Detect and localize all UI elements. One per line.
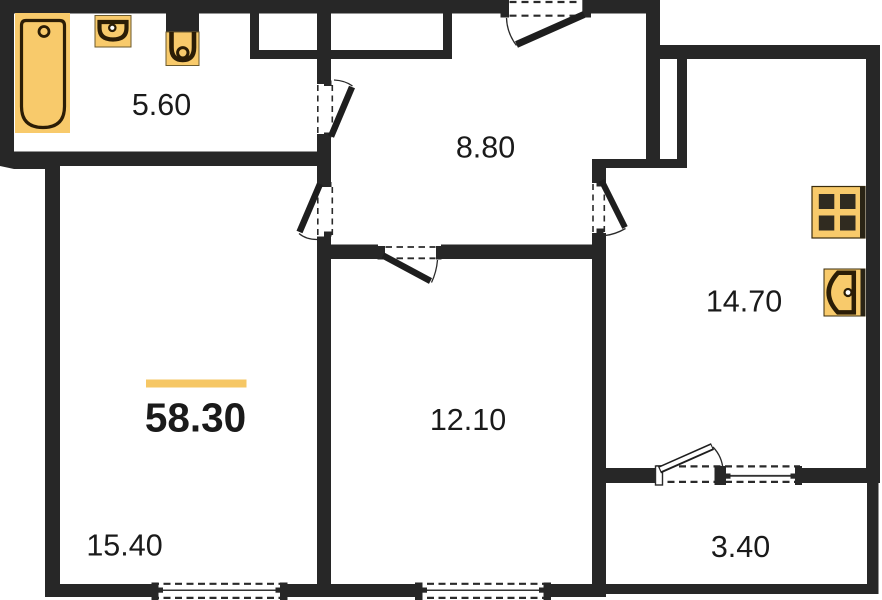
svg-text:58.30: 58.30 bbox=[145, 395, 246, 441]
svg-text:14.70: 14.70 bbox=[706, 285, 782, 319]
svg-text:8.80: 8.80 bbox=[456, 131, 515, 165]
svg-text:3.40: 3.40 bbox=[711, 530, 770, 564]
svg-text:5.60: 5.60 bbox=[132, 88, 191, 122]
svg-text:12.10: 12.10 bbox=[430, 403, 506, 437]
svg-text:15.40: 15.40 bbox=[86, 529, 162, 563]
